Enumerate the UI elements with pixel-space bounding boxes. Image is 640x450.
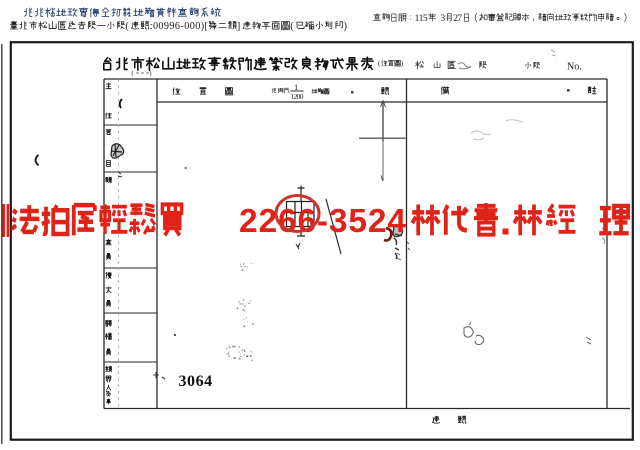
svg-text:No.: No. (567, 62, 582, 73)
svg-text:3064: 3064 (179, 373, 213, 390)
svg-text:115: 115 (415, 13, 428, 24)
svg-text:1: 1 (294, 82, 298, 92)
svg-text:3: 3 (440, 13, 445, 24)
svg-text:2266-3524: 2266-3524 (239, 203, 406, 240)
svg-text:): ) (344, 21, 347, 32)
svg-text::00996-000)[: :00996-000)[ (150, 21, 209, 32)
svg-text:(: ( (125, 21, 129, 32)
svg-text:]: ] (237, 21, 240, 32)
svg-text:(: ( (290, 21, 294, 32)
svg-text:27: 27 (453, 13, 462, 24)
svg-text:1200: 1200 (291, 92, 304, 101)
